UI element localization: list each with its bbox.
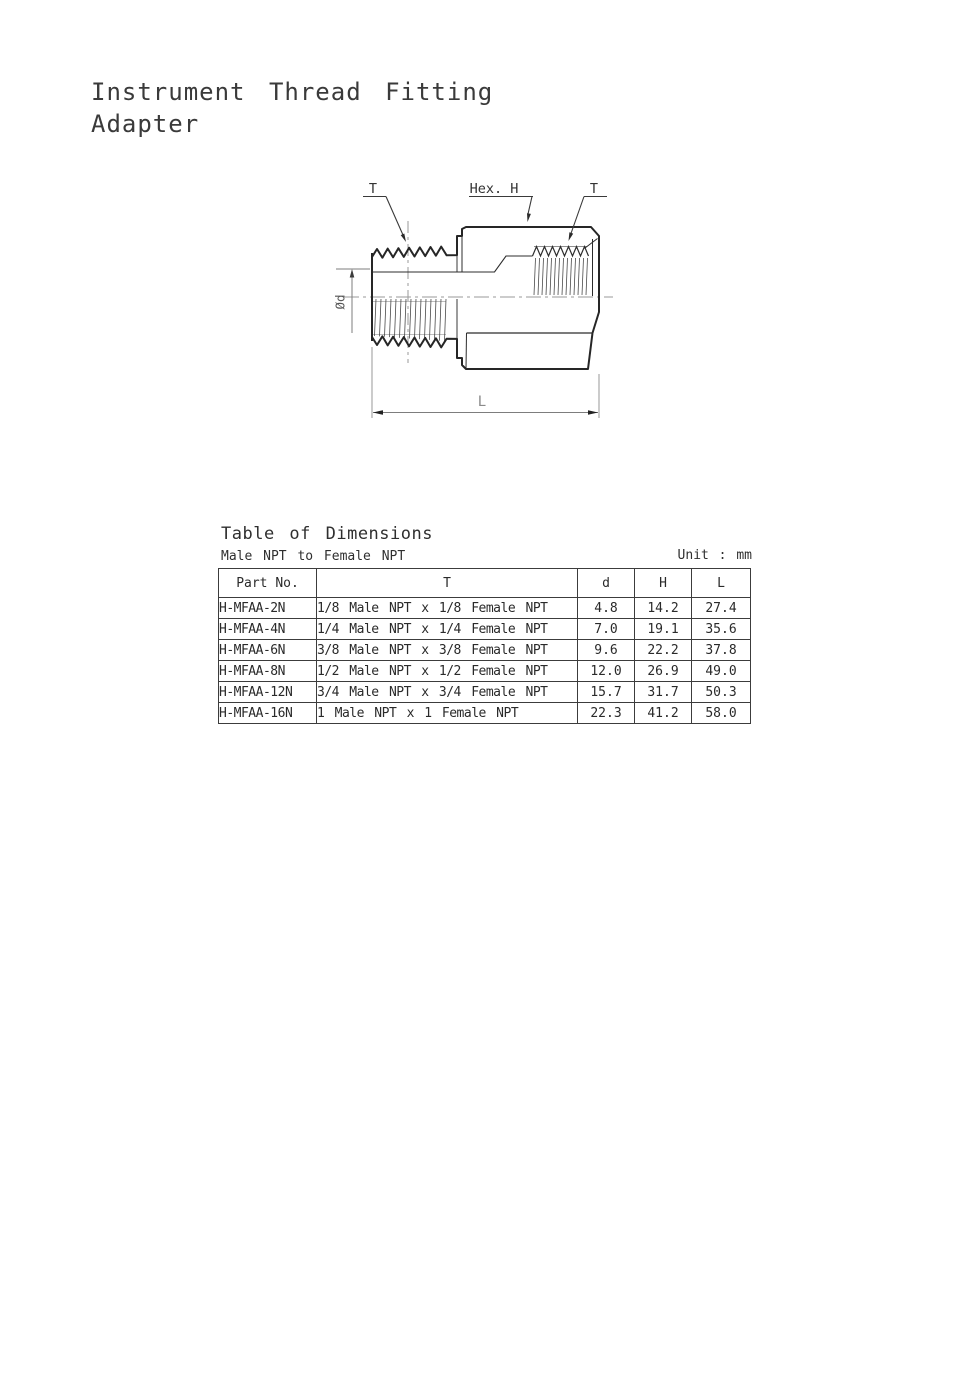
leader-line: [469, 197, 533, 215]
leader-arrowhead: [527, 213, 531, 222]
thread-desc-cell: 3/8 Male NPT x 3/8 Female NPT: [317, 640, 578, 661]
page-title-line1: Instrument Thread Fitting: [91, 76, 493, 108]
column-header-h: H: [635, 569, 692, 598]
catalog-page: Instrument Thread Fitting Adapter: [0, 0, 970, 1373]
dimension-length: L: [372, 347, 599, 418]
thread-desc-cell: 1/2 Male NPT x 1/2 Female NPT: [317, 661, 578, 682]
dimension-diameter: Ød: [333, 269, 371, 333]
female-thread: [372, 239, 598, 297]
d-cell: 9.6: [578, 640, 635, 661]
l-cell: 35.6: [692, 619, 751, 640]
h-cell: 22.2: [635, 640, 692, 661]
leader-arrowhead: [569, 232, 574, 241]
part-no-cell: H-MFAA-4N: [219, 619, 317, 640]
d-cell: 4.8: [578, 598, 635, 619]
h-cell: 41.2: [635, 703, 692, 724]
table-row: H-MFAA-12N 3/4 Male NPT x 3/4 Female NPT…: [219, 682, 751, 703]
bore-line: [372, 256, 533, 272]
h-cell: 26.9: [635, 661, 692, 682]
leader-female-thread: T: [569, 181, 608, 241]
male-thread-label: T: [369, 181, 377, 197]
female-thread-zigzag: [533, 247, 589, 257]
female-thread-flank-lines: [534, 258, 588, 295]
thread-desc-cell: 1/4 Male NPT x 1/4 Female NPT: [317, 619, 578, 640]
l-cell: 58.0: [692, 703, 751, 724]
part-no-cell: H-MFAA-6N: [219, 640, 317, 661]
table-unit-note: Unit : mm: [560, 548, 752, 563]
table-subtitle: Male NPT to Female NPT: [221, 549, 405, 564]
profile-top: [372, 227, 599, 333]
column-header-l: L: [692, 569, 751, 598]
technical-drawing: Ød L T Hex. H T: [300, 165, 660, 435]
length-label: L: [478, 394, 486, 410]
body-outline: [372, 227, 599, 369]
dimensions-table: Part No. T d H L H-MFAA-2N 1/8 Male NPT …: [218, 568, 751, 724]
d-cell: 15.7: [578, 682, 635, 703]
centerlines: [344, 221, 613, 363]
leader-line: [363, 197, 403, 236]
table-row: H-MFAA-8N 1/2 Male NPT x 1/2 Female NPT …: [219, 661, 751, 682]
diameter-arrowhead: [350, 269, 355, 278]
l-cell: 37.8: [692, 640, 751, 661]
d-cell: 12.0: [578, 661, 635, 682]
leader-hex: Hex. H: [469, 181, 533, 222]
table-row: H-MFAA-6N 3/8 Male NPT x 3/8 Female NPT …: [219, 640, 751, 661]
table-row: H-MFAA-4N 1/4 Male NPT x 1/4 Female NPT …: [219, 619, 751, 640]
d-cell: 7.0: [578, 619, 635, 640]
hex-label: Hex. H: [470, 181, 519, 197]
profile-bottom: [372, 333, 593, 369]
column-header-part-no: Part No.: [219, 569, 317, 598]
h-cell: 31.7: [635, 682, 692, 703]
table-row: H-MFAA-16N 1 Male NPT x 1 Female NPT 22.…: [219, 703, 751, 724]
leader-line: [571, 197, 607, 235]
h-cell: 14.2: [635, 598, 692, 619]
column-header-d: d: [578, 569, 635, 598]
length-arrowhead-left: [373, 410, 383, 415]
table-row: H-MFAA-2N 1/8 Male NPT x 1/8 Female NPT …: [219, 598, 751, 619]
thread-desc-cell: 3/4 Male NPT x 3/4 Female NPT: [317, 682, 578, 703]
leader-male-thread: T: [363, 181, 406, 242]
part-no-cell: H-MFAA-2N: [219, 598, 317, 619]
thread-desc-cell: 1 Male NPT x 1 Female NPT: [317, 703, 578, 724]
l-cell: 27.4: [692, 598, 751, 619]
leader-arrowhead: [401, 234, 406, 243]
page-title: Instrument Thread Fitting Adapter: [91, 76, 493, 140]
female-thread-label: T: [590, 181, 598, 197]
part-no-cell: H-MFAA-8N: [219, 661, 317, 682]
table-title: Table of Dimensions: [221, 524, 433, 544]
diameter-label: Ød: [333, 294, 348, 309]
page-title-line2: Adapter: [91, 108, 493, 140]
column-header-t: T: [317, 569, 578, 598]
h-cell: 19.1: [635, 619, 692, 640]
d-cell: 22.3: [578, 703, 635, 724]
female-thread-entry-chamfer: [585, 239, 598, 249]
hex-corner-edge: [466, 333, 467, 369]
thread-desc-cell: 1/8 Male NPT x 1/8 Female NPT: [317, 598, 578, 619]
length-arrowhead-right: [588, 410, 598, 415]
l-cell: 49.0: [692, 661, 751, 682]
part-no-cell: H-MFAA-16N: [219, 703, 317, 724]
part-no-cell: H-MFAA-12N: [219, 682, 317, 703]
l-cell: 50.3: [692, 682, 751, 703]
table-header-row: Part No. T d H L: [219, 569, 751, 598]
